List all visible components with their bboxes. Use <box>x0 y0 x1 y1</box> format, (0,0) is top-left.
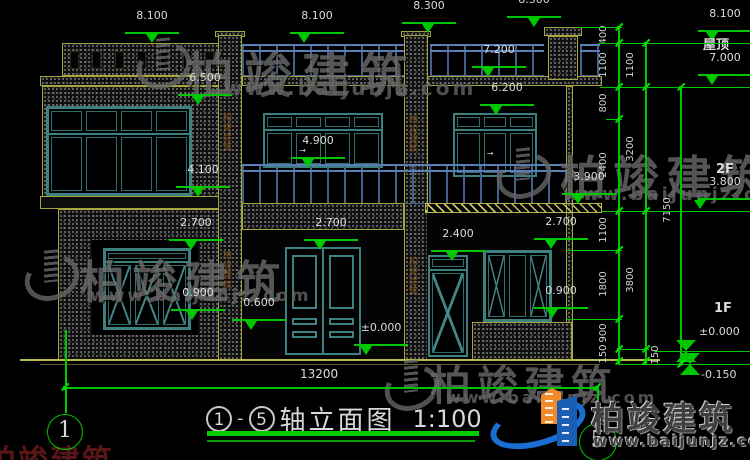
elevation-label: 8.100 <box>285 10 349 22</box>
dim-chain-value: 150 <box>649 333 663 377</box>
bottom-dim-value: 13200 <box>300 368 338 380</box>
brand-logo: 柏竣建筑 www.baijunjz.com <box>487 392 750 458</box>
dim-chain-line <box>680 87 682 364</box>
dim-chain-value: 7150 <box>661 188 675 232</box>
brand-building-blue-icon <box>557 396 577 446</box>
elevation-marker-line <box>304 239 358 241</box>
dim-chain-line <box>645 43 647 364</box>
axis-line <box>65 330 67 413</box>
elevation-label: 4.900 <box>286 135 350 147</box>
column-watermark-text: 柏竣建筑 <box>220 250 233 290</box>
elevation-label: 8.500 <box>502 0 566 6</box>
elevation-label: 7.000 <box>693 52 750 64</box>
axis-bubble: 1 <box>47 414 83 450</box>
brand-url: www.baijunjz.com <box>593 432 750 450</box>
elevation-label: 0.600 <box>227 297 291 309</box>
dim-chain-value: 2400 <box>597 143 611 187</box>
title-underline-thin <box>207 440 475 442</box>
elevation-label: 2.700 <box>164 217 228 229</box>
axis-circle-start: 1 <box>206 406 232 432</box>
elevation-marker-line <box>480 104 534 106</box>
dim-chain-value: 3200 <box>624 127 638 171</box>
elevation-marker-triangle-icon <box>528 18 540 27</box>
column-watermark-text: 柏竣建筑 <box>220 112 233 152</box>
annotation-layer: 8.1008.1008.3008.5007.2006.5006.2004.900… <box>0 0 750 460</box>
column-watermark-text: 柏竣建筑 <box>406 256 419 296</box>
level-extension-line <box>602 211 750 212</box>
dim-chain-value: 1800 <box>597 262 611 306</box>
elevation-marker-triangle-icon <box>422 24 434 33</box>
elevation-label: 0.900 <box>529 285 593 297</box>
level-line <box>655 351 750 352</box>
level-extension-line <box>600 87 750 88</box>
elevation-label: 6.500 <box>173 72 237 84</box>
elevation-label: 7.200 <box>467 44 531 56</box>
elevation-marker-line <box>232 319 286 321</box>
cad-elevation-drawing: → → <box>0 0 750 460</box>
elevation-marker-triangle-icon <box>546 309 558 318</box>
level-label: -0.150 <box>701 369 736 381</box>
elevation-label: 3.800 <box>693 176 750 188</box>
elevation-label: 8.100 <box>693 8 750 20</box>
elevation-marker-triangle-icon <box>192 188 204 197</box>
elevation-label: ±0.000 <box>349 322 413 334</box>
level-extension-line <box>578 27 622 28</box>
elevation-marker-triangle-icon <box>482 68 494 77</box>
dim-chain-value: 1100 <box>624 43 638 87</box>
dim-chain-line <box>618 27 620 364</box>
elevation-marker-triangle-icon <box>490 106 502 115</box>
elevation-marker-triangle-icon <box>186 311 198 320</box>
elevation-marker-line <box>534 238 588 240</box>
elevation-marker-triangle-icon <box>545 240 557 249</box>
elevation-label: 2.700 <box>299 217 363 229</box>
elevation-marker-triangle-icon <box>302 159 314 168</box>
elevation-marker-line <box>562 193 616 195</box>
title-underline-thick <box>207 431 479 436</box>
level-extension-line <box>598 43 750 44</box>
floor-label: 2F <box>716 164 734 176</box>
elevation-marker-line <box>534 307 588 309</box>
elevation-marker-triangle-icon <box>146 34 158 43</box>
level-extension-line <box>618 349 649 350</box>
axis-dash: - <box>237 408 244 429</box>
elevation-label: 8.300 <box>397 0 461 12</box>
level-extension-line <box>566 250 622 251</box>
title-scale: 1:100 <box>413 405 482 433</box>
level-marker-bottom-icon <box>680 364 700 375</box>
elevation-label: 2.400 <box>426 228 490 240</box>
elevation-marker-triangle-icon <box>298 34 310 43</box>
elevation-marker-triangle-icon <box>572 195 584 204</box>
bottom-dim-line <box>65 387 597 389</box>
floor-label: 屋顶 <box>703 40 729 52</box>
elevation-marker-triangle-icon <box>446 252 458 261</box>
dim-node <box>679 363 682 366</box>
dim-node <box>617 360 620 363</box>
level-label: ±0.000 <box>699 326 740 338</box>
dim-node <box>644 360 647 363</box>
axis-circle-end: 5 <box>249 406 275 432</box>
elevation-marker-triangle-icon <box>185 241 197 250</box>
elevation-label: 2.700 <box>529 216 593 228</box>
elevation-marker-line <box>171 309 225 311</box>
elevation-marker-triangle-icon <box>706 76 718 85</box>
level-marker-top-icon <box>676 340 696 351</box>
dim-chain-value: 150 <box>597 332 611 376</box>
elevation-marker-line <box>472 66 526 68</box>
elevation-marker-line <box>291 157 345 159</box>
elevation-marker-triangle-icon <box>245 321 257 330</box>
elevation-label: 4.100 <box>171 164 235 176</box>
elevation-marker-line <box>431 250 485 252</box>
elevation-marker-triangle-icon <box>360 346 372 355</box>
elevation-marker-triangle-icon <box>314 241 326 250</box>
floor-label: 1F <box>714 303 732 315</box>
column-watermark-text: 柏竣建筑 <box>406 114 419 154</box>
elevation-label: 6.200 <box>475 82 539 94</box>
elevation-marker-triangle-icon <box>192 96 204 105</box>
level-extension-line <box>606 119 622 120</box>
elevation-label: 3.900 <box>557 171 621 183</box>
dim-chain-value: 3800 <box>624 258 638 302</box>
level-extension-line <box>566 319 622 320</box>
elevation-label: 8.100 <box>120 10 184 22</box>
dim-chain-value: 1100 <box>597 208 611 252</box>
elevation-marker-line <box>178 94 232 96</box>
elevation-marker-triangle-icon <box>694 200 706 209</box>
